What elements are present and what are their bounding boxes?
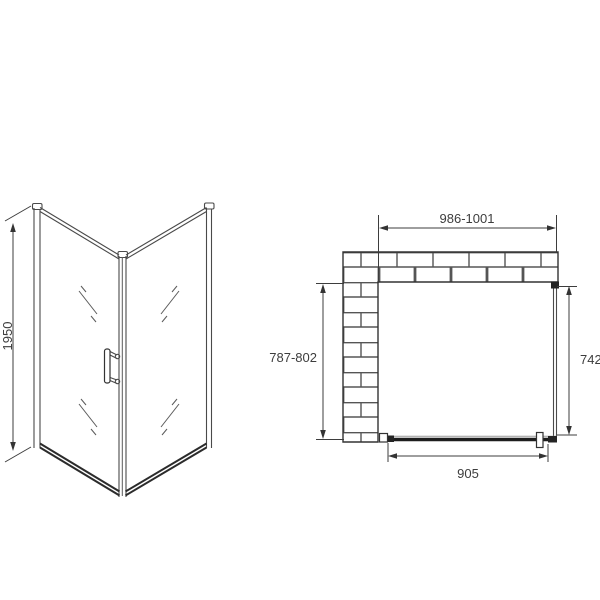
- corner-post: [118, 252, 128, 498]
- arrow-down-icon: [566, 426, 572, 435]
- bottom-rails: [40, 444, 207, 496]
- technical-drawing-canvas: 1950: [0, 0, 600, 600]
- arrow-right-icon: [547, 225, 556, 231]
- door-hinge-profile: [388, 436, 394, 443]
- arrow-down-icon: [320, 430, 326, 439]
- arrow-up-icon: [10, 223, 16, 232]
- arrow-up-icon: [320, 284, 326, 293]
- door-width-label: 905: [457, 466, 479, 481]
- door-handle-plan: [537, 433, 544, 448]
- glass-shine-marks-door: [79, 286, 97, 435]
- side-panel-dimension: 742: [557, 286, 600, 435]
- plan-view: 986-1001 787-802 742: [269, 211, 600, 481]
- side-panel-plan: [551, 282, 559, 437]
- opening-depth-dimension: 787-802: [269, 284, 344, 440]
- glass-shine-marks-side: [161, 286, 179, 435]
- side-panel-right-post: [205, 203, 215, 448]
- arrow-right-icon: [539, 453, 548, 459]
- arrow-down-icon: [10, 442, 16, 451]
- shower-enclosure-drawing: 1950: [0, 0, 600, 600]
- height-dimension: 1950: [0, 206, 31, 462]
- door-plan: [380, 433, 558, 448]
- arrow-left-icon: [388, 453, 397, 459]
- door-frame-left-post: [33, 204, 43, 449]
- arrow-up-icon: [566, 286, 572, 295]
- door-corner-joint: [548, 436, 557, 443]
- arrow-left-icon: [379, 225, 388, 231]
- door-width-dimension: 905: [388, 443, 548, 481]
- wall-profile: [380, 434, 388, 443]
- door-handle: [105, 349, 120, 384]
- opening-depth-label: 787-802: [269, 350, 317, 365]
- elevation-view: 1950: [0, 203, 214, 497]
- brick-wall: [343, 252, 558, 442]
- opening-width-label: 986-1001: [440, 211, 495, 226]
- height-dimension-label: 1950: [0, 322, 15, 351]
- side-panel-label: 742: [580, 352, 600, 367]
